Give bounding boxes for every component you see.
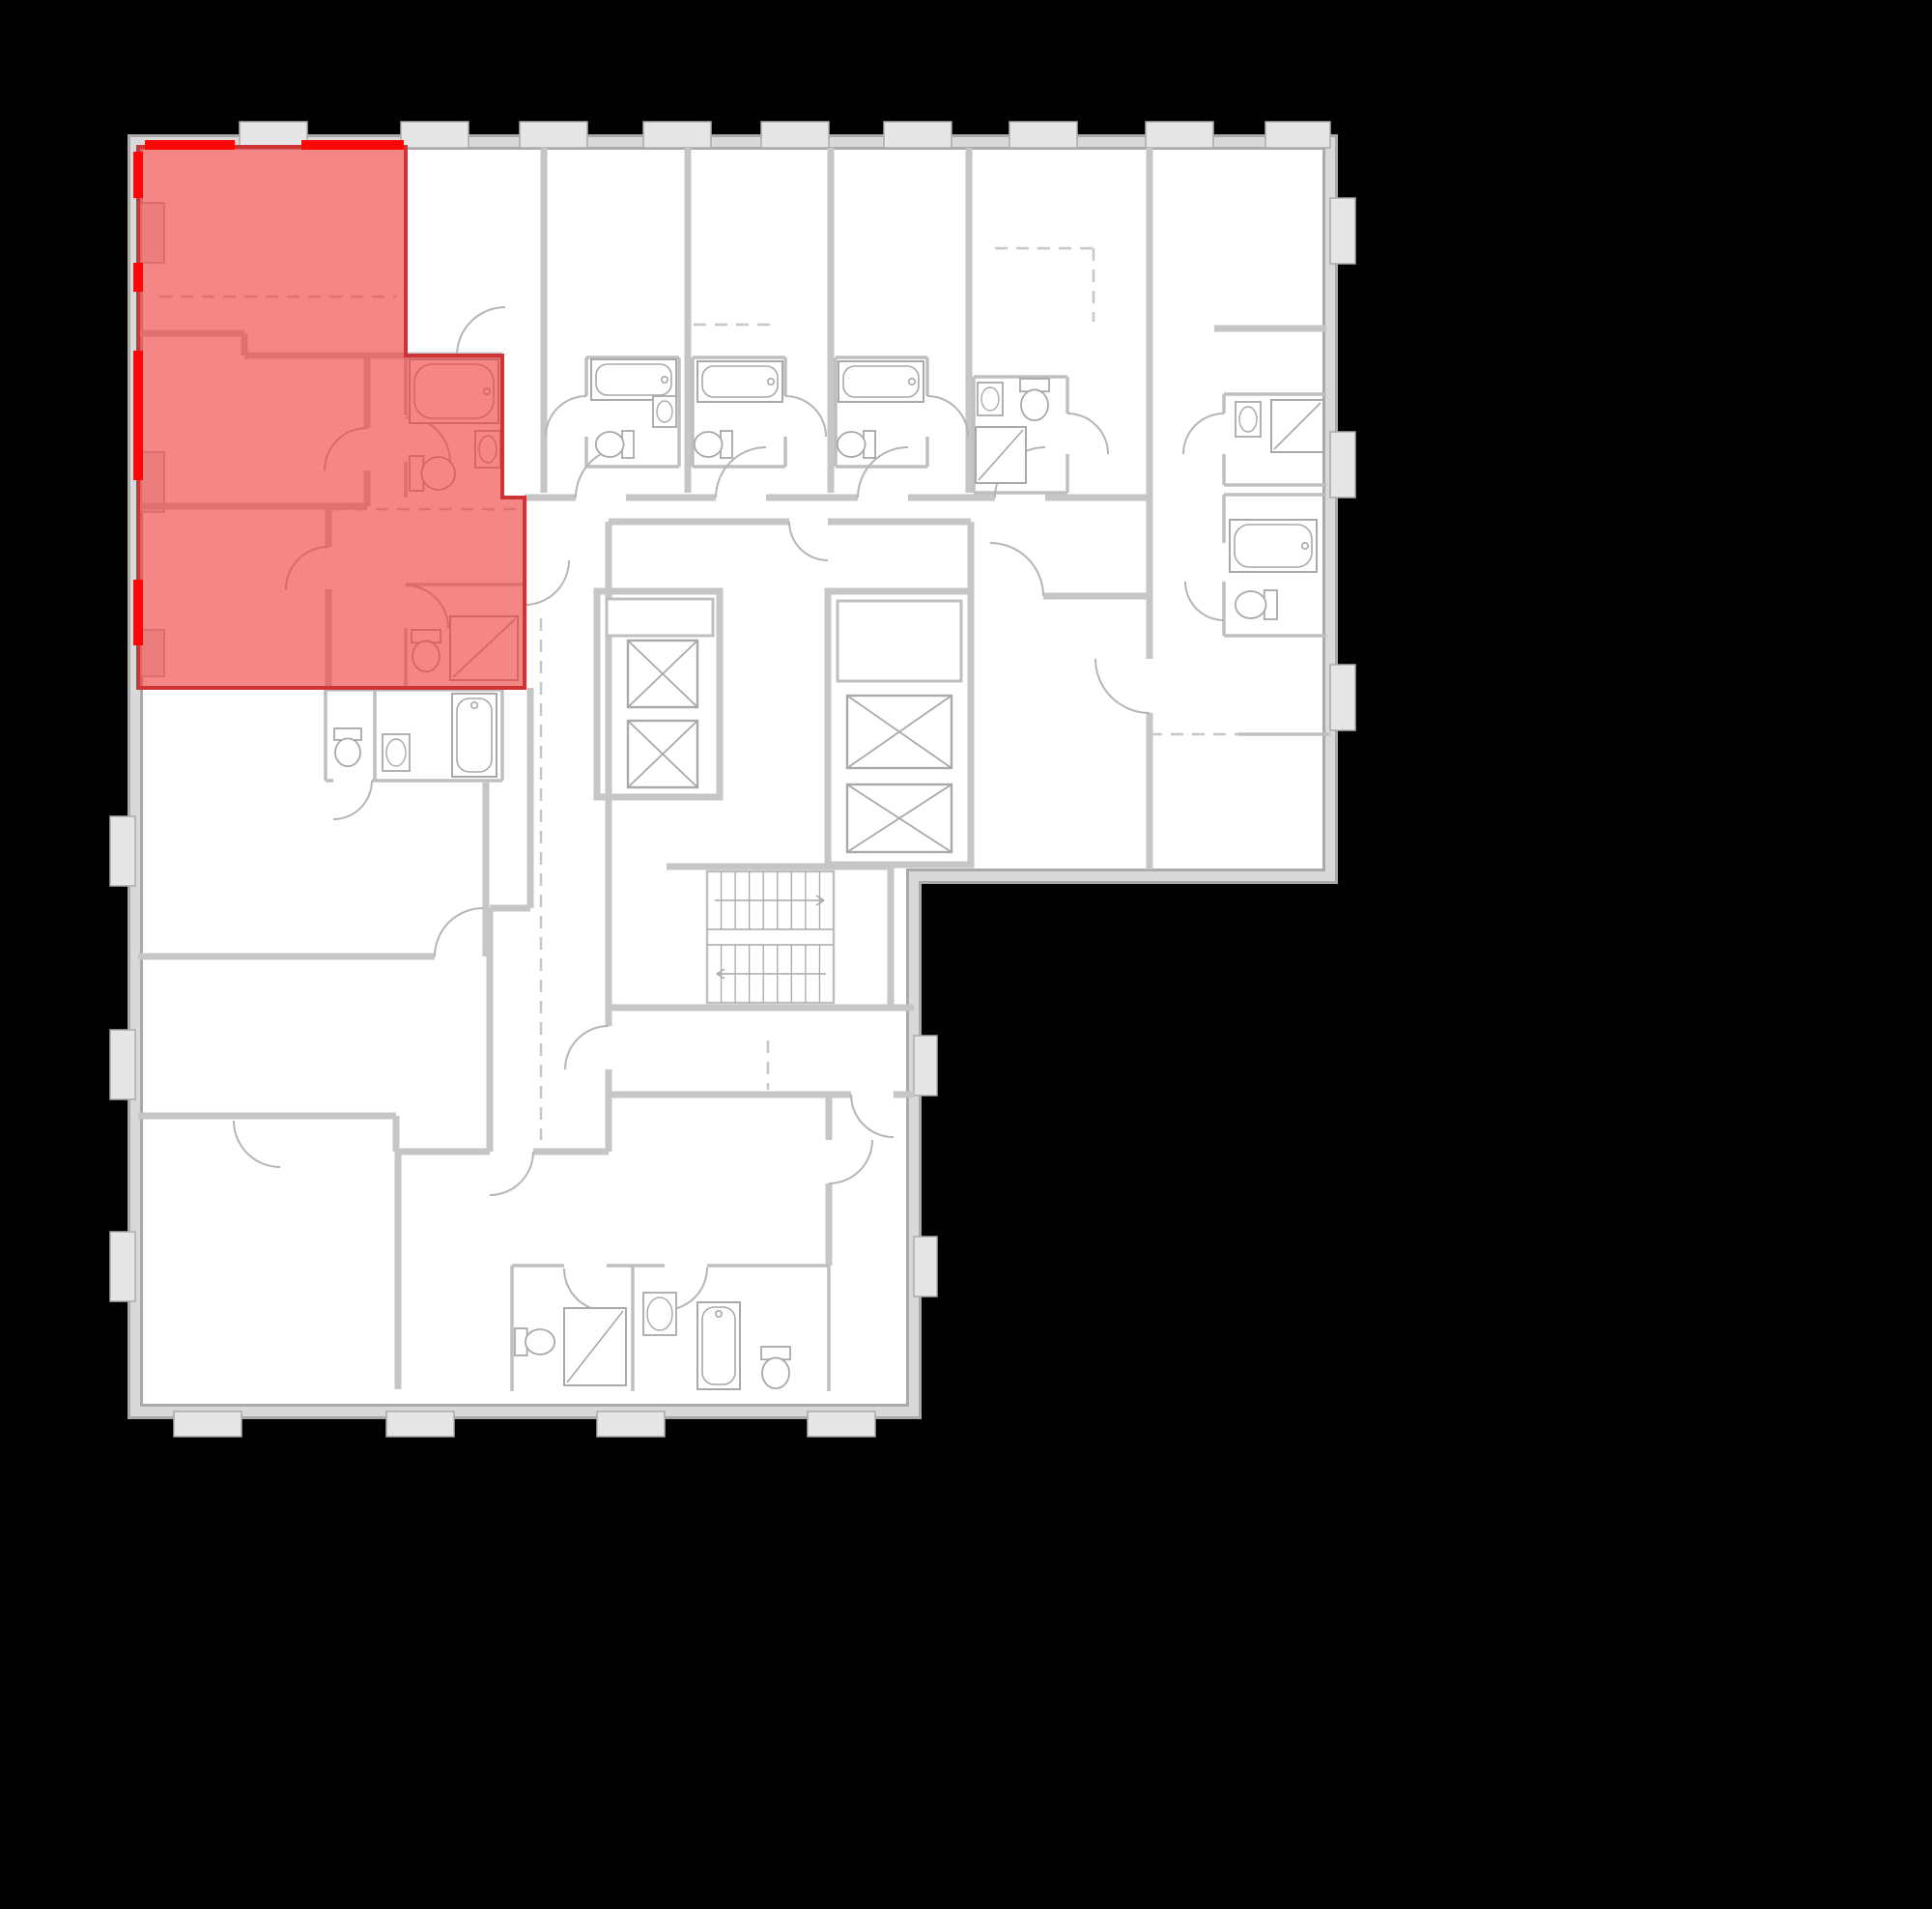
stairwell <box>707 871 834 1003</box>
floor-plan-svg <box>0 0 1932 1909</box>
floor-plan-viewer <box>0 0 1932 1909</box>
